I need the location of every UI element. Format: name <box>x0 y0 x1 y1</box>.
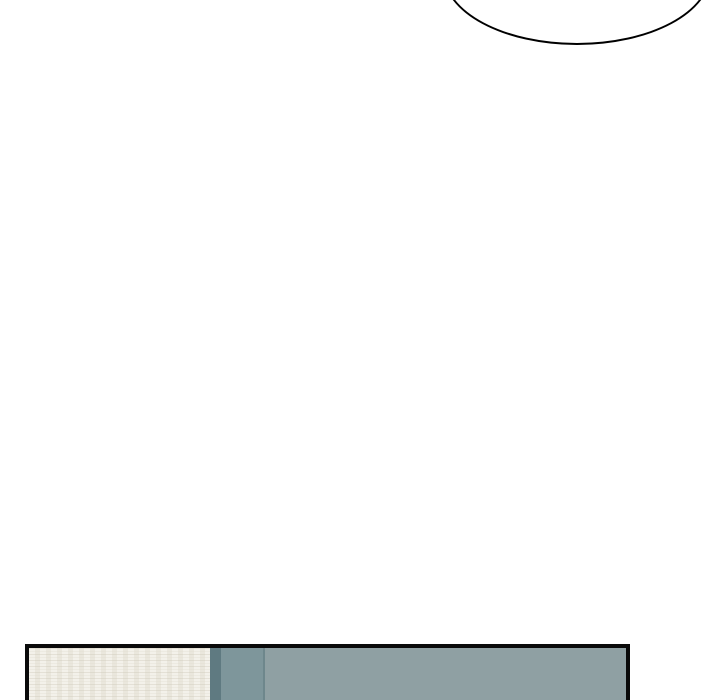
panel-wall-gray-teal <box>265 648 626 700</box>
page-gutter <box>0 0 720 700</box>
panel-door-frame-dark-strip <box>210 648 221 700</box>
panel-wall-cream-textured <box>29 648 210 700</box>
speech-bubble-bottom-arc <box>443 0 711 45</box>
panel-door-mid-teal <box>221 648 263 700</box>
next-panel-top-edge <box>25 644 630 700</box>
